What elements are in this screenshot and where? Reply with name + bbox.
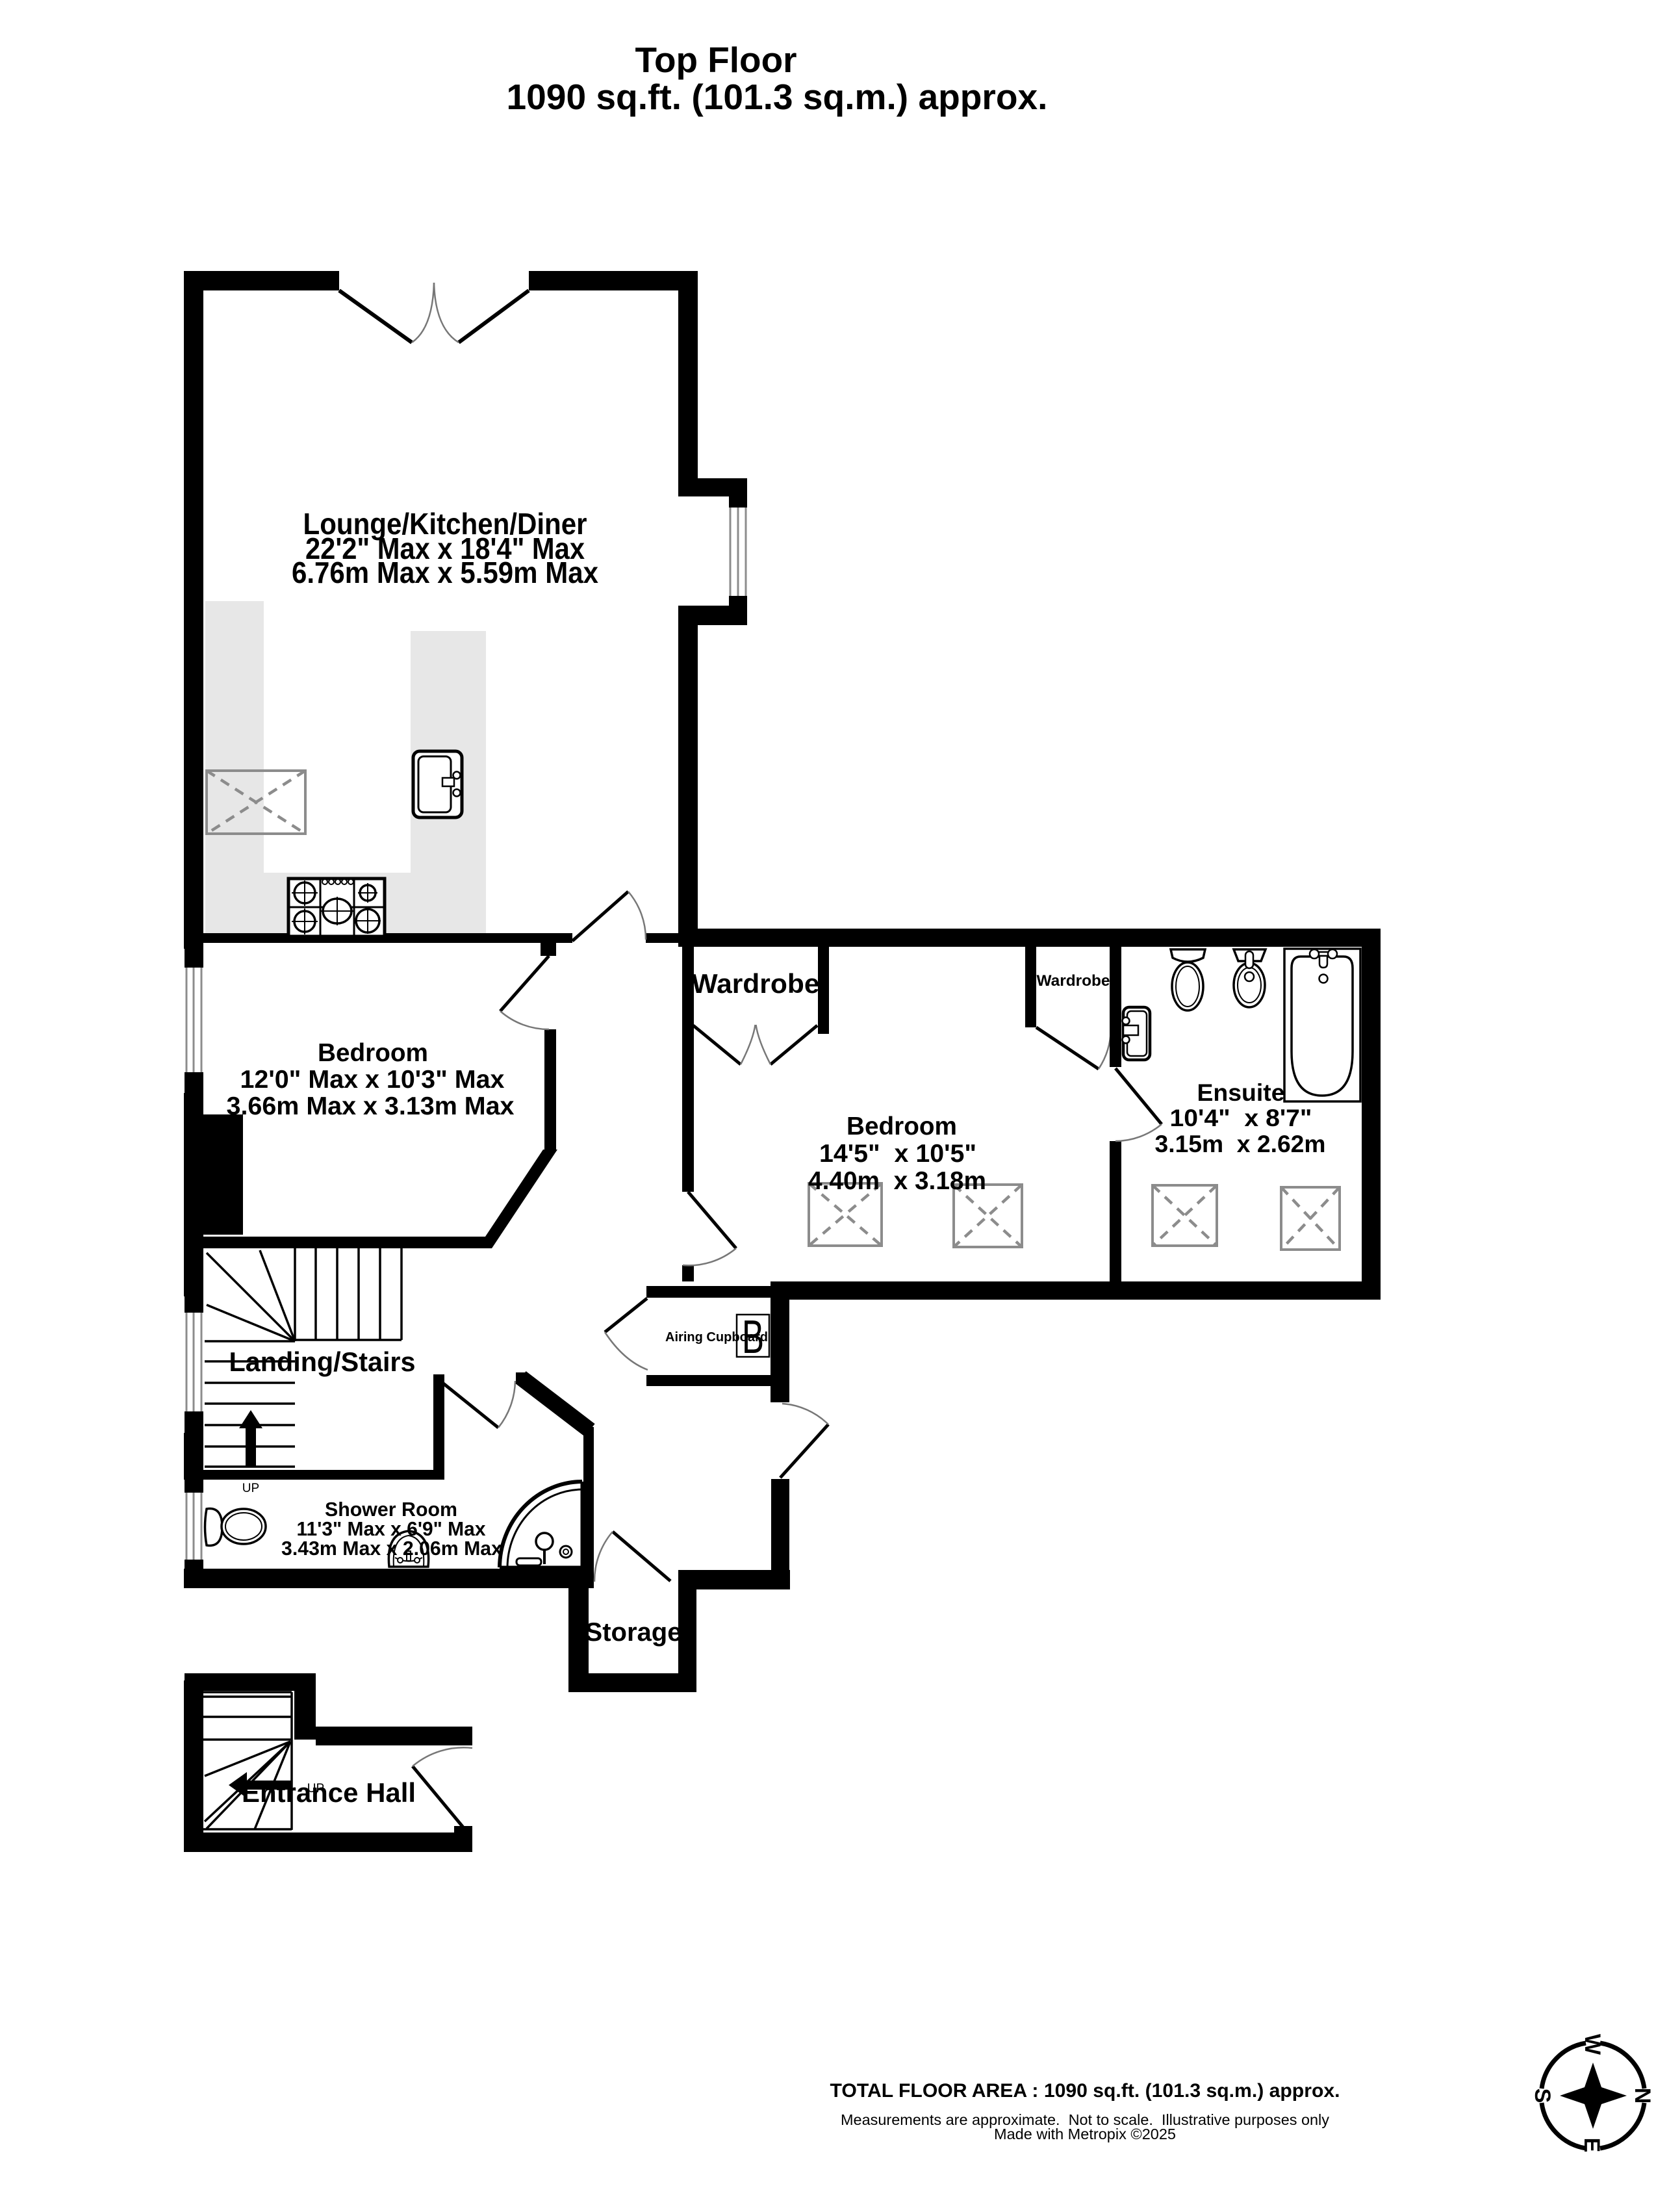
svg-text:E: E [1579, 2138, 1604, 2153]
svg-text:Entrance Hall: Entrance Hall [242, 1777, 416, 1808]
svg-text:12'0" Max x 10'3" Max: 12'0" Max x 10'3" Max [240, 1066, 505, 1094]
svg-text:14'5" x 10'5": 14'5" x 10'5" [819, 1140, 976, 1168]
svg-text:Top Floor: Top Floor [635, 40, 797, 80]
svg-text:4.40m x 3.18m: 4.40m x 3.18m [808, 1167, 986, 1195]
svg-text:N: N [1630, 2088, 1655, 2104]
svg-text:11'3" Max x 6'9" Max: 11'3" Max x 6'9" Max [297, 1519, 486, 1540]
svg-text:3.43m Max x 2.06m Max: 3.43m Max x 2.06m Max [281, 1538, 502, 1560]
svg-text:1090 sq.ft. (101.3 sq.m.) appr: 1090 sq.ft. (101.3 sq.m.) approx. [507, 77, 1048, 117]
svg-text:3.15m x 2.62m: 3.15m x 2.62m [1155, 1130, 1326, 1157]
svg-text:10'4" x 8'7": 10'4" x 8'7" [1170, 1104, 1312, 1131]
svg-text:Storage: Storage [585, 1618, 682, 1647]
svg-text:Landing/Stairs: Landing/Stairs [229, 1346, 416, 1377]
svg-text:UP: UP [307, 1782, 324, 1795]
svg-text:Shower Room: Shower Room [325, 1499, 457, 1521]
svg-text:3.66m Max x 3.13m Max: 3.66m Max x 3.13m Max [227, 1092, 515, 1120]
svg-text:Bedroom: Bedroom [847, 1112, 957, 1140]
svg-text:B: B [742, 1311, 764, 1363]
svg-text:6.76m Max x 5.59m Max: 6.76m Max x 5.59m Max [292, 556, 598, 589]
svg-text:Wardrobe: Wardrobe [692, 968, 820, 999]
svg-text:S: S [1530, 2089, 1555, 2103]
svg-text:TOTAL FLOOR AREA : 1090 sq.ft.: TOTAL FLOOR AREA : 1090 sq.ft. (101.3 sq… [830, 2080, 1340, 2102]
svg-text:W: W [1580, 2034, 1605, 2055]
svg-text:UP: UP [242, 1482, 259, 1495]
svg-text:Made with Metropix ©2025: Made with Metropix ©2025 [994, 2126, 1176, 2142]
svg-text:Wardrobe: Wardrobe [1037, 972, 1110, 990]
svg-text:Bedroom: Bedroom [318, 1039, 428, 1067]
svg-text:Ensuite: Ensuite [1197, 1079, 1285, 1106]
